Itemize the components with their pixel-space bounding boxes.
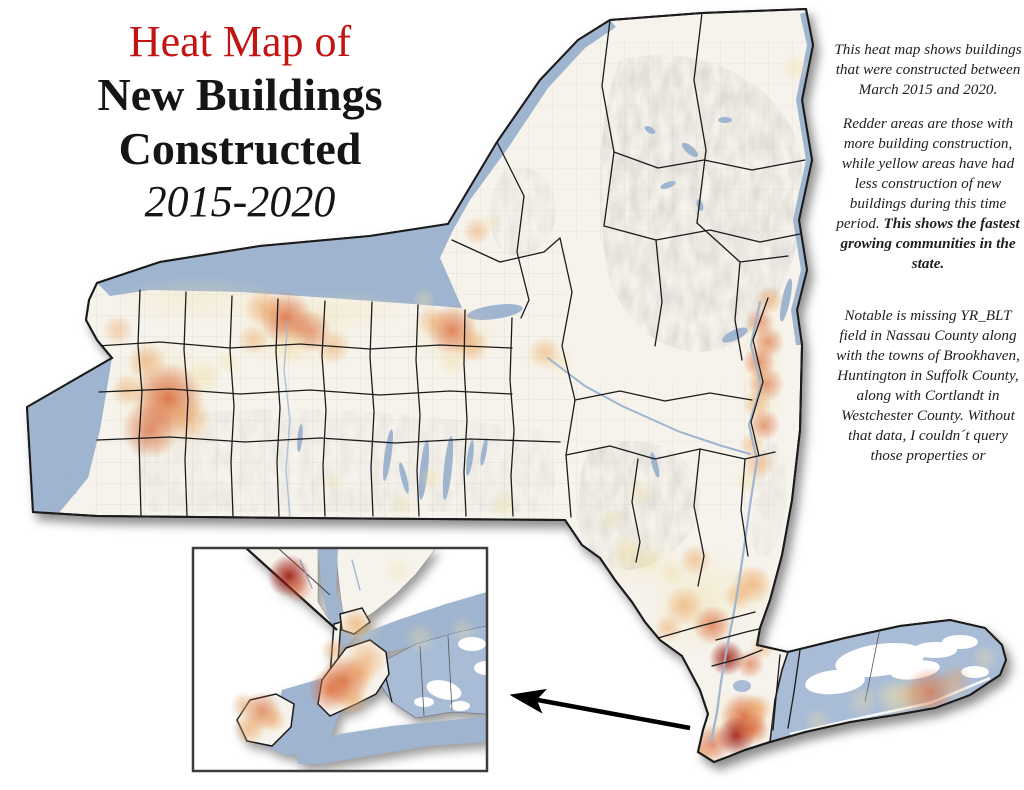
description-para-1: This heat map shows buildings that were …: [833, 40, 1023, 100]
title-line-3: Constructed: [60, 122, 420, 176]
title-line-2: New Buildings: [60, 68, 420, 122]
inset-arrow: [516, 696, 690, 728]
page-root: { "title": { "line1": "Heat Map of", "li…: [0, 0, 1024, 790]
description-panel: This heat map shows buildings that were …: [833, 40, 1023, 480]
description-para-2: Redder areas are those with more buildin…: [833, 114, 1023, 274]
nyc-inset-map: [230, 548, 498, 764]
title-line-1: Heat Map of: [60, 16, 420, 68]
map-title: Heat Map of New Buildings Constructed 20…: [60, 16, 420, 228]
description-para-3: Notable is missing YR_BLT field in Nassa…: [833, 306, 1023, 466]
title-line-4: 2015-2020: [60, 176, 420, 228]
